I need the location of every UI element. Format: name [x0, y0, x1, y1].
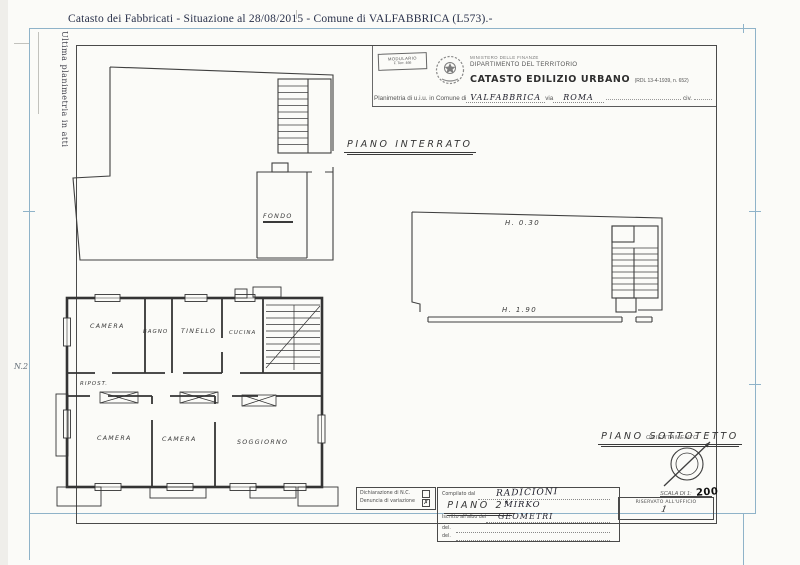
room-label-tinello: TINELLO [181, 328, 216, 335]
del-dotline-2 [456, 539, 610, 541]
albo-value: GEOMETRI [498, 512, 553, 521]
interrato-title: PIANO INTERRATO [344, 139, 476, 153]
compass-icon [664, 442, 710, 486]
compilato-label: Compilato dal [442, 492, 475, 497]
dichiarazione-label: Dichiarazione di N.C. [360, 491, 410, 496]
nc-checkbox [422, 490, 430, 498]
dichiarazione-box: Dichiarazione di N.C. Denuncia di variaz… [356, 487, 436, 510]
riservato-label: RISERVATO ALL'UFFICIO [619, 500, 713, 505]
room-label-bagno: BAGNO [143, 329, 168, 335]
height-annotation-190: H. 1.90 [502, 306, 537, 314]
piano2-plan [56, 287, 338, 506]
compilato-box: Compilato dal RADICIONI MIRKO Iscritto a… [437, 487, 620, 542]
height-annotation-030: H. 0.30 [505, 219, 540, 227]
riservato-box: RISERVATO ALL'UFFICIO 1 [618, 497, 714, 520]
room-label-camera-1: CAMERA [90, 323, 125, 330]
room-label-fondo: FONDO [263, 213, 293, 223]
room-label-soggiorno: SOGGIORNO [237, 439, 288, 446]
compilato-surname: RADICIONI [496, 487, 559, 499]
del-dotline-1 [456, 531, 610, 533]
riservato-mark: 1 [660, 505, 667, 516]
scanned-cadastral-document: { "page": { "top_title": "Catasto dei Fa… [0, 0, 800, 565]
room-label-ripost: RIPOST. [80, 381, 108, 387]
orientamento-label: ORIENTAMENTO [646, 435, 698, 441]
room-label-cucina: CUCINA [229, 330, 256, 336]
room-label-camera-3: CAMERA [162, 436, 197, 443]
iscritto-dotline [486, 521, 610, 523]
variazione-checkbox: ✗ [422, 499, 430, 507]
denuncia-label: Denuncia di variazione [360, 499, 415, 504]
compilato-firstname: MIRKO [504, 500, 541, 510]
interrato-plan [73, 67, 333, 260]
floor-plan-drawing [0, 0, 800, 565]
iscritto-label: Iscritto all'albo dei [442, 515, 486, 520]
del-label-1: del. [442, 526, 451, 531]
del-label-2: del. [442, 534, 451, 539]
room-label-camera-2: CAMERA [97, 435, 132, 442]
